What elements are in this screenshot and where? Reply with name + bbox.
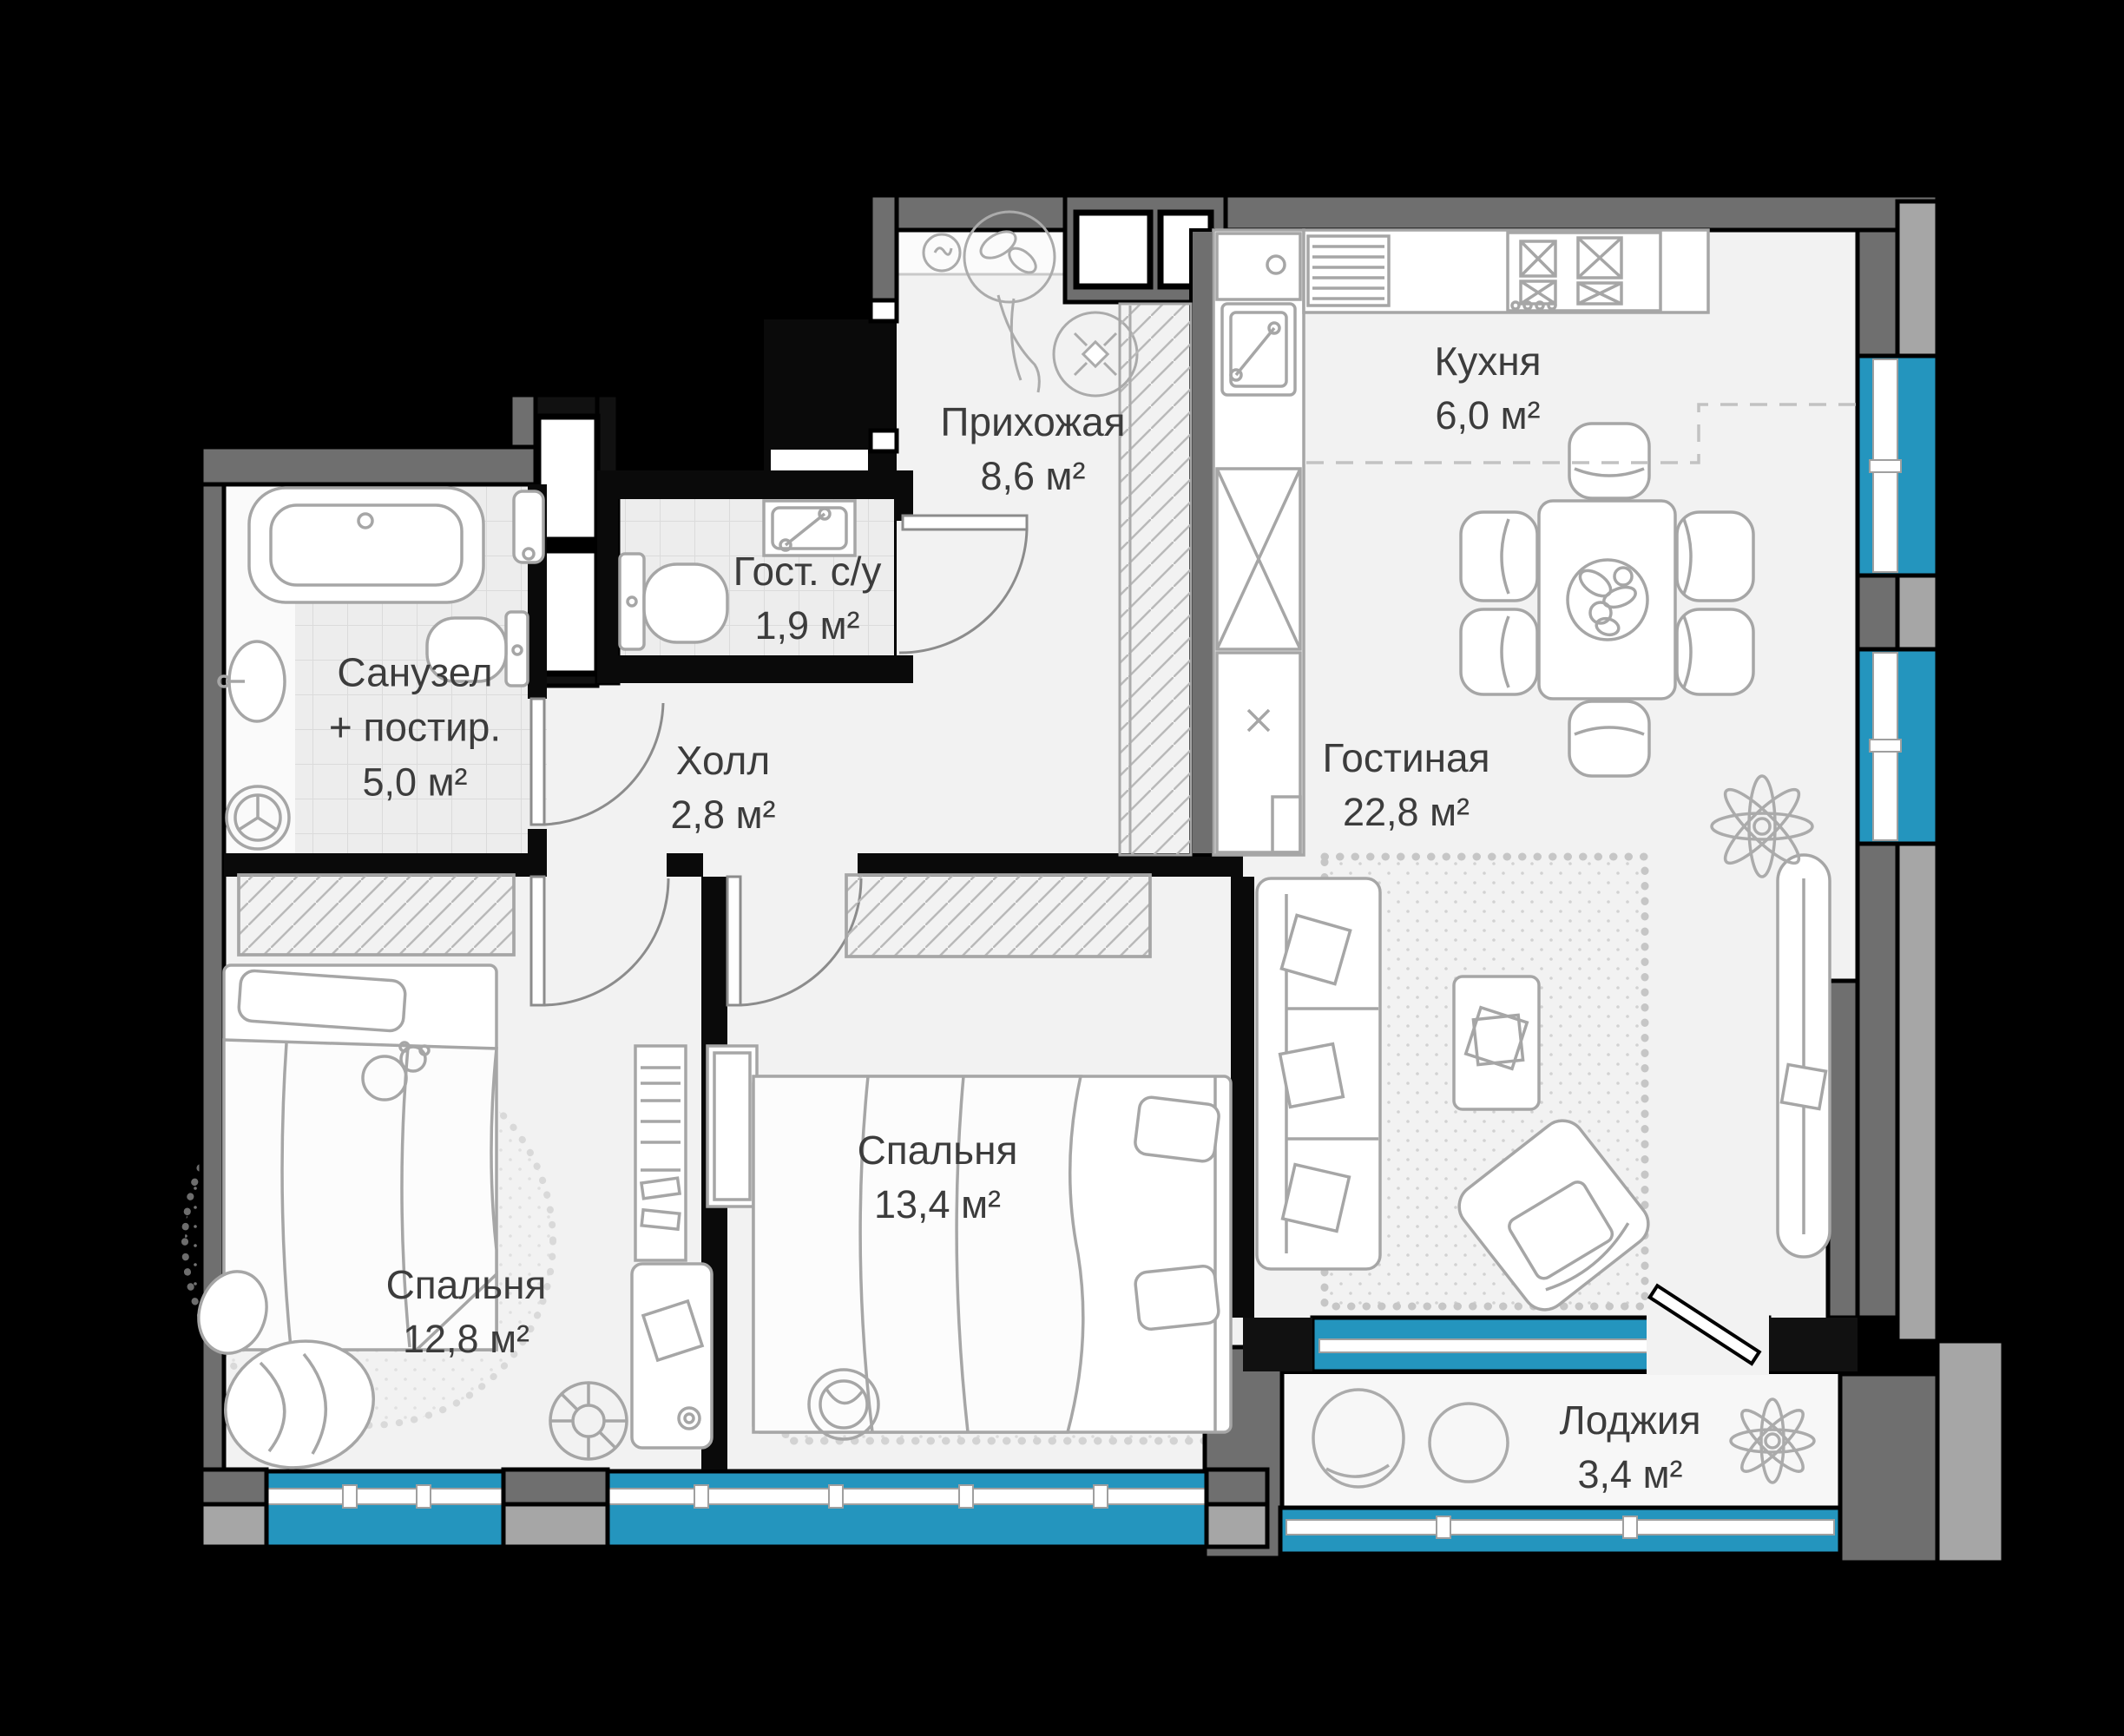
bathtub: [249, 488, 483, 602]
floor-plan-drawing: [0, 0, 2124, 1736]
room-area: 3,4 м²: [1560, 1449, 1701, 1503]
room-name: Спальня: [858, 1123, 1018, 1178]
room-area: 12,8 м²: [386, 1313, 547, 1367]
room-label-bathroom: Санузел + постир. 5,0 м²: [329, 645, 501, 809]
desk: [632, 1264, 712, 1448]
room-name: Холл: [671, 733, 776, 788]
room-name: Гостиная: [1322, 731, 1489, 786]
toilet-guest: [620, 554, 727, 649]
entrance-door-opening: [771, 450, 868, 470]
window-kitchen: [1858, 356, 1937, 575]
room-area: 1,9 м²: [733, 600, 882, 654]
window-loggia-front: [1280, 1508, 1840, 1554]
windows-bedrooms: [201, 1470, 1267, 1547]
room-area: 6,0 м²: [1434, 390, 1541, 444]
wardrobe-hallway: [1120, 304, 1191, 855]
room-area: 5,0 м²: [329, 755, 501, 809]
room-name: Гост. с/у: [733, 544, 882, 599]
sofa: [1257, 878, 1380, 1269]
room-label-hall: Холл 2,8 м²: [671, 733, 776, 843]
wardrobe-bedroom-2: [846, 875, 1150, 957]
basket-bedroom-2: [809, 1370, 878, 1439]
room-label-kitchen: Кухня 6,0 м²: [1434, 334, 1541, 444]
console: [1778, 855, 1830, 1257]
coffee-table: [1454, 976, 1539, 1109]
room-label-bedroom-1: Спальня 12,8 м²: [386, 1258, 547, 1367]
room-label-living: Гостиная 22,8 м²: [1322, 731, 1489, 840]
towel-rail: [514, 491, 543, 562]
room-label-prihozhaya: Прихожая 8,6 м²: [940, 395, 1125, 504]
room-label-loggia: Лоджия 3,4 м²: [1560, 1393, 1701, 1503]
room-name: Санузел: [329, 645, 501, 700]
bookshelf: [635, 1046, 686, 1260]
room-name-line2: + постир.: [329, 700, 501, 755]
wardrobe-bedroom-1: [239, 875, 514, 955]
room-label-bedroom-2: Спальня 13,4 м²: [858, 1123, 1018, 1233]
room-area: 8,6 м²: [940, 450, 1125, 504]
room-area: 22,8 м²: [1322, 786, 1489, 840]
room-area: 2,8 м²: [671, 789, 776, 843]
floor-plan: Прихожая 8,6 м² Кухня 6,0 м² Гост. с/у 1…: [0, 0, 2124, 1736]
room-name: Спальня: [386, 1258, 547, 1312]
room-name: Прихожая: [940, 395, 1125, 450]
room-name: Лоджия: [1560, 1393, 1701, 1448]
dining-table: [1539, 501, 1675, 699]
room-name: Кухня: [1434, 334, 1541, 389]
room-label-guest-wc: Гост. с/у 1,9 м²: [733, 544, 882, 654]
window-living: [1858, 649, 1937, 844]
washing-machine: [227, 786, 289, 849]
entrance: [764, 300, 897, 473]
room-area: 13,4 м²: [858, 1179, 1018, 1233]
